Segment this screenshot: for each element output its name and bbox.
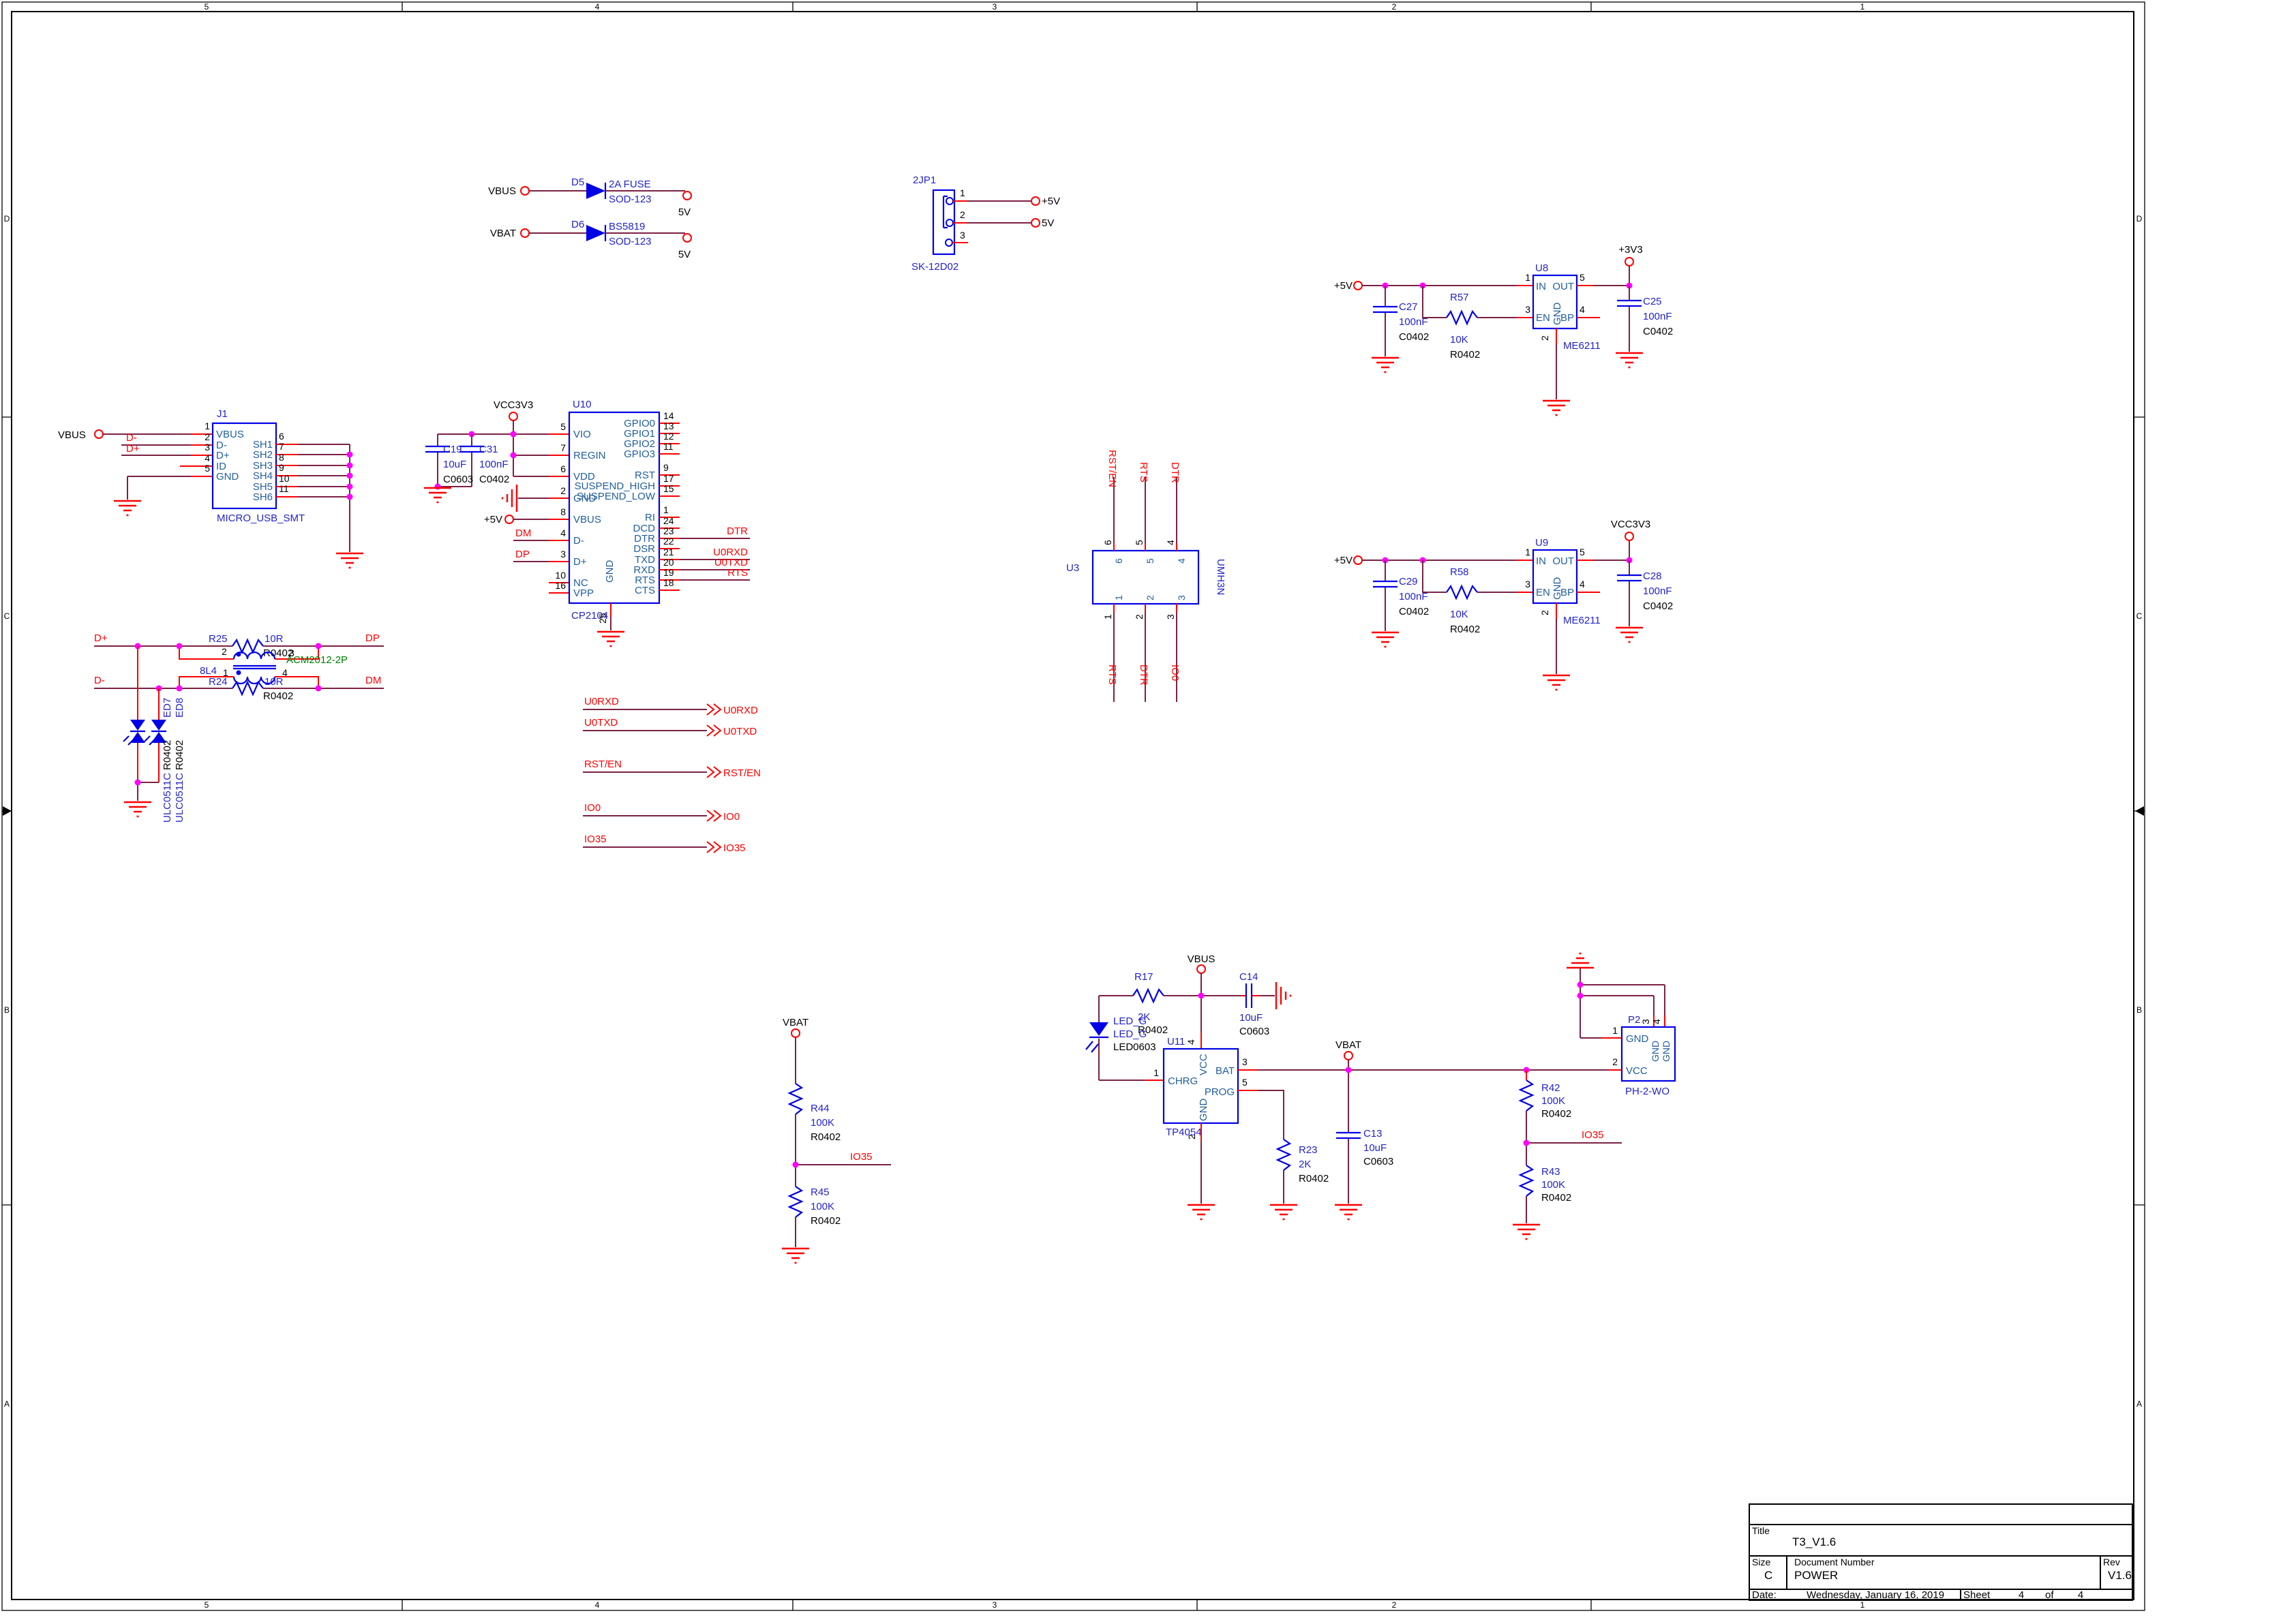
diode-icon	[586, 183, 605, 199]
refdes: C28	[1643, 570, 1662, 582]
net-label-rts: RTS	[1106, 664, 1118, 685]
border-zone-dividers	[2, 2, 2145, 1610]
net-label-vbus: VBUS	[488, 185, 516, 197]
resistor-icon	[1133, 990, 1164, 1002]
refdes: U11	[1167, 1036, 1185, 1047]
ground-icon	[124, 802, 151, 816]
pin-number: 2	[1186, 1134, 1197, 1139]
pin-name: CHRG	[1168, 1075, 1198, 1087]
pin-number: 2	[222, 646, 227, 657]
junction-dot	[177, 643, 183, 649]
pin-name: VCC	[1198, 1054, 1209, 1075]
border-outer	[2, 2, 2145, 1610]
net-label-p5v: +5V	[1334, 280, 1353, 292]
pin-name-gnd: GND	[604, 560, 616, 583]
ldo-u9: +5V C29 100nF C0402 R58 10K R0402 U9 1 I…	[1334, 519, 1673, 690]
pin-number: 4	[1185, 1039, 1196, 1045]
pin-number: 17	[663, 473, 674, 484]
border-col-bottom: 4	[595, 1600, 600, 1610]
part-value: ACM2012-2P	[286, 654, 348, 666]
pin-number: 3	[1165, 614, 1176, 619]
pin-name-gnd: GND	[1552, 303, 1563, 326]
part-value: 2K	[1299, 1159, 1311, 1170]
resistor-icon	[1520, 1165, 1532, 1196]
net-label-dm: DM	[365, 675, 381, 686]
pin-number: 3	[1525, 304, 1530, 315]
pin-number: 1	[663, 504, 669, 515]
pin-name: 4	[1176, 558, 1187, 564]
part-value: 10uF	[443, 459, 466, 470]
footprint: R0402	[263, 690, 293, 702]
refdes: P2	[1628, 1014, 1640, 1026]
offpage-arrow-icon	[707, 842, 721, 853]
pin-name: GND	[1626, 1033, 1649, 1045]
junction-dot	[793, 1162, 799, 1168]
offpage-arrow-icon	[707, 767, 721, 778]
part-value: BS5819	[609, 221, 645, 232]
border-col-top: 1	[1860, 2, 1865, 12]
part-value: 100K	[811, 1201, 834, 1212]
offpage-label-io35: IO35	[723, 842, 746, 854]
net-label-dm: DM	[515, 527, 531, 539]
pin-name: GND	[1650, 1041, 1661, 1062]
wire	[1593, 266, 1629, 286]
ground-icon	[1335, 1205, 1362, 1219]
net-label-dminus: D-	[126, 432, 137, 444]
pin-name: 2	[1145, 595, 1155, 600]
footprint: R0402	[162, 740, 173, 770]
choke-polarity-dot	[237, 671, 241, 675]
footprint: C0603	[443, 474, 473, 485]
battery-connector-p2: P2 PH-2-WO 1 GND 2 VCC 3 4 GND GND R42 1…	[1513, 953, 1675, 1239]
net-label-vbat: VBAT	[783, 1017, 809, 1028]
schottky-diode-d6: VBAT D6 BS5819 SOD-123 5V	[490, 219, 691, 260]
pin-number: 5	[1580, 547, 1585, 557]
pin-name: SUSPEND_LOW	[577, 491, 656, 502]
net-port-icon	[521, 187, 529, 195]
border-row-left: A	[4, 1399, 10, 1409]
pin-name: OUT	[1552, 555, 1574, 567]
refdes: U3	[1066, 562, 1079, 574]
schematic-canvas: 5 4 3 2 1 5 4 3 2 1 D C B A D C B A Titl…	[0, 0, 2296, 1622]
net-port-icon	[505, 515, 513, 523]
refdes: 8L4	[200, 665, 217, 677]
refdes: C19	[443, 444, 462, 455]
pin-number: 6	[279, 431, 284, 442]
ground-icon	[1543, 675, 1570, 690]
net-port-icon	[1197, 965, 1205, 973]
ground-icon	[597, 632, 624, 646]
net-label-io35: IO35	[584, 833, 607, 845]
pin-number: 3	[560, 549, 566, 560]
wire	[1423, 560, 1517, 592]
refdes: R43	[1541, 1166, 1560, 1178]
pin-name: 3	[1176, 595, 1187, 600]
pin-number: 8	[279, 452, 284, 463]
part-value: LED_G	[1113, 1028, 1147, 1040]
led-emission-arrows	[1086, 1041, 1098, 1052]
refdes: D6	[571, 219, 584, 230]
border-row-right: D	[2136, 214, 2143, 224]
net-label-dp: DP	[365, 632, 380, 644]
pin-number: 1	[1525, 272, 1530, 283]
refdes: U9	[1535, 537, 1548, 549]
junction-dot	[511, 453, 517, 459]
ground-icon	[1616, 628, 1643, 642]
border-col-top: 3	[993, 2, 997, 12]
choke-core	[233, 666, 276, 669]
net-label-dtr: DTR	[727, 525, 748, 537]
pin-name: GND	[1661, 1041, 1672, 1062]
capacitor-icon	[1373, 581, 1398, 587]
footprint: C0603	[1239, 1026, 1269, 1037]
pin-name: SH6	[253, 491, 273, 503]
pin-name: VBUS	[573, 514, 601, 525]
resistor-icon	[1520, 1080, 1532, 1111]
pin-number: 24	[663, 515, 674, 526]
capacitor-icon	[1617, 575, 1642, 581]
pin-number: 3	[1525, 579, 1530, 590]
pin-number: 1	[960, 187, 965, 198]
pin-name: 5	[1145, 558, 1155, 564]
footprint: SOD-123	[609, 236, 652, 247]
pin-name: 1	[1113, 595, 1124, 600]
border-row-left: B	[4, 1005, 10, 1015]
border-col-top: 5	[205, 2, 209, 12]
pin-number: 12	[663, 431, 674, 442]
ground-icon	[502, 485, 517, 512]
switch-contact-icon	[946, 219, 953, 226]
title-block-frame	[1749, 1504, 2132, 1600]
net-label-dplus: D+	[126, 443, 140, 455]
pin-number: 5	[1242, 1077, 1248, 1088]
pin-number: 6	[560, 463, 566, 474]
battery-divider: VBAT R44 100K R0402 IO35 R45 100K R0402	[782, 1017, 891, 1263]
ground-icon	[1270, 1205, 1297, 1219]
usb-filter: D+ DP D- DM R25 10R R0402 R24 10R R0402 …	[94, 632, 384, 823]
pin-number: 1	[1525, 547, 1530, 557]
pin-name: REGIN	[573, 450, 606, 461]
wire	[796, 1037, 891, 1247]
capacitor-icon	[1617, 301, 1642, 306]
part-value: ULC0511C	[174, 773, 185, 823]
refdes: R23	[1299, 1144, 1318, 1156]
pin-number: 4	[205, 453, 210, 463]
pin-number: 10	[279, 473, 290, 484]
pin-number: 4	[560, 527, 566, 538]
refdes: R44	[811, 1103, 830, 1114]
footprint: LED0603	[1113, 1041, 1156, 1053]
pin-name: GND	[1198, 1099, 1209, 1122]
refdes: J1	[217, 408, 228, 420]
net-port-icon	[509, 412, 517, 420]
footprint: R0402	[811, 1215, 841, 1227]
part-value: 100nF	[1643, 585, 1672, 597]
schematic-page: 5 4 3 2 1 5 4 3 2 1 D C B A D C B A Titl…	[0, 0, 2296, 1622]
net-label-rts: RTS	[727, 567, 748, 579]
pin-number: 7	[560, 442, 566, 453]
footprint: R0402	[1299, 1173, 1329, 1184]
pin-name: D-	[573, 535, 584, 547]
part-value: ME6211	[1563, 615, 1601, 626]
doc-number-value: POWER	[1794, 1569, 1838, 1582]
offpage-arrow-icon	[707, 704, 721, 715]
net-label-dp: DP	[515, 549, 530, 560]
pin-name: SH2	[253, 449, 273, 461]
refdes: R42	[1541, 1082, 1560, 1094]
net-label-vbus: VBUS	[58, 429, 86, 441]
pin-number: 14	[663, 410, 674, 421]
junction-dot	[1346, 1067, 1352, 1073]
border-arrow-right-icon	[2135, 806, 2144, 816]
net-port-icon	[1354, 556, 1362, 564]
pin-number: 20	[663, 557, 674, 568]
part-value: 10R	[265, 633, 284, 645]
sheet-label: Sheet	[1963, 1589, 1991, 1601]
part-value: 2A FUSE	[609, 179, 651, 190]
usb-connector-j1: VBUS D- D+ J1 MICRO_USB_SMT 1 2 3 4 5 VB…	[58, 408, 363, 568]
refdes: C25	[1643, 296, 1662, 307]
junction-dot	[347, 463, 353, 469]
pin-name: BAT	[1215, 1065, 1235, 1077]
net-label-5v: 5V	[1042, 217, 1054, 229]
border-inner	[12, 12, 2134, 1600]
junction-dot	[1198, 993, 1205, 999]
resistor-icon	[232, 682, 263, 694]
net-label-5v: 5V	[678, 206, 691, 218]
wire	[298, 444, 350, 552]
net-port-icon	[1031, 197, 1040, 205]
offpage-signals: U0RXD U0RXD U0TXD U0TXD RST/EN RST/EN IO…	[583, 696, 761, 854]
border-col-bottom: 3	[993, 1600, 997, 1610]
junction-dot	[135, 780, 141, 786]
pin-number: 13	[663, 420, 674, 431]
refdes: ED7	[162, 698, 173, 718]
footprint: C0402	[1643, 326, 1673, 337]
pin-number: 16	[555, 580, 566, 591]
net-label-io0: IO0	[584, 802, 601, 814]
net-label-io35: IO35	[1582, 1129, 1604, 1141]
pin-name: EN	[1536, 312, 1550, 324]
junction-dot	[177, 686, 183, 692]
pin-number: 5	[1134, 540, 1145, 545]
offpage-label-u0txd: U0TXD	[723, 726, 757, 737]
net-label-dtr: DTR	[1169, 462, 1181, 483]
refdes: ED8	[174, 698, 185, 718]
net-label-vbus: VBUS	[1188, 953, 1215, 965]
refdes: 2JP1	[913, 174, 936, 186]
refdes: R25	[209, 633, 228, 645]
net-label-rst-en: RST/EN	[584, 759, 622, 770]
pin-number: 8	[560, 506, 566, 517]
pin-name: IN	[1536, 555, 1546, 567]
part-value: 10uF	[1363, 1142, 1387, 1154]
net-port-icon	[683, 192, 691, 200]
part-value: ULC0511C	[162, 773, 173, 823]
pin-number: 4	[1165, 540, 1176, 545]
net-port-icon	[683, 234, 691, 242]
pin-name: D+	[216, 450, 230, 461]
net-label-rst-en: RST/EN	[1106, 450, 1118, 487]
pin-number: 11	[279, 483, 289, 494]
net-label-io0: IO0	[1169, 664, 1181, 681]
refdes: D5	[571, 177, 584, 188]
pin-number: 5	[1580, 272, 1585, 283]
net-label-rts: RTS	[1138, 462, 1149, 483]
wire	[138, 782, 159, 801]
pin-name: DSR	[633, 543, 655, 555]
ground-icon	[1372, 358, 1399, 372]
usb-uart-u10: VCC3V3 C19 10uF C0603 C31 100nF C0402 +5…	[424, 399, 750, 646]
net-port-icon	[1625, 258, 1633, 266]
footprint: SK-12D02	[911, 261, 958, 273]
wire	[967, 201, 1031, 223]
ground-icon	[782, 1249, 809, 1263]
refdes: C31	[479, 444, 498, 455]
pin-number: 23	[663, 525, 674, 536]
pin-number: 3	[205, 442, 210, 453]
title-block: Title T3_V1.6 Size C Document Number POW…	[1749, 1504, 2132, 1601]
pin-number: 11	[663, 441, 674, 452]
junction-dot	[347, 494, 353, 500]
ground-icon	[1543, 401, 1570, 415]
footprint: R0402	[174, 740, 185, 770]
pin-number: 18	[663, 577, 674, 588]
footprint: R0402	[1541, 1192, 1571, 1204]
pin-number: 3	[1242, 1056, 1248, 1067]
wire	[138, 646, 159, 782]
junction-dot	[316, 643, 322, 649]
junction-dot	[316, 686, 322, 692]
date-value: Wednesday, January 16, 2019	[1807, 1589, 1944, 1601]
net-label-u0txd: U0TXD	[584, 717, 618, 729]
date-label: Date:	[1752, 1589, 1777, 1601]
pin-number: 1	[1102, 614, 1113, 619]
size-label: Size	[1752, 1557, 1770, 1567]
size-value: C	[1764, 1569, 1772, 1582]
rev-value: V1.6	[2108, 1569, 2132, 1582]
resistor-icon	[232, 640, 263, 652]
ldo-u8: +5V C27 100nF C0402 R57 10K R0402 U8 1 I…	[1334, 244, 1673, 415]
net-label-u0rxd: U0RXD	[584, 696, 619, 707]
part-value: 100nF	[479, 459, 509, 470]
junction-dot	[347, 452, 353, 458]
refdes: C29	[1399, 576, 1418, 587]
part-value: 100K	[1541, 1095, 1565, 1107]
refdes: R58	[1450, 566, 1469, 578]
border-row-right: A	[2136, 1399, 2142, 1409]
refdes: U8	[1535, 262, 1548, 274]
pin-name: VCC	[1626, 1065, 1648, 1077]
pin-number: 4	[1651, 1019, 1662, 1024]
part-value: 10K	[1450, 334, 1468, 346]
resistor-icon	[1447, 311, 1477, 324]
pin-name-gnd: GND	[1552, 577, 1563, 600]
border-col-top: 2	[1392, 2, 1397, 12]
pin-number: 2	[1539, 335, 1550, 341]
pin-number: 6	[1102, 540, 1113, 545]
wire	[103, 434, 191, 500]
footprint: C0402	[1399, 606, 1429, 617]
ground-icon	[1616, 353, 1643, 367]
rev-label: Rev	[2103, 1557, 2120, 1567]
footprint: SOD-123	[609, 194, 652, 205]
sheet-number: 4	[2019, 1589, 2024, 1601]
net-label-vbat: VBAT	[490, 228, 516, 239]
pin-number: 15	[663, 483, 674, 494]
choke-polarity-dot	[237, 652, 241, 657]
pin-number: 10	[555, 570, 566, 581]
pin-name: CTS	[635, 585, 655, 596]
part-value: ME6211	[1563, 340, 1601, 352]
pin-number: 1	[1612, 1025, 1618, 1036]
pin-number: 1	[223, 667, 228, 678]
pin-number: 5	[560, 421, 566, 432]
pin-name: RST	[635, 470, 655, 481]
net-label-p5v: +5V	[1334, 555, 1353, 566]
refdes: R45	[811, 1187, 830, 1198]
border-col-top: 4	[595, 2, 600, 12]
capacitor-icon	[1246, 983, 1252, 1008]
border-arrow-left-icon	[3, 806, 12, 816]
net-port-icon	[1625, 532, 1633, 540]
pin-name: VIO	[573, 429, 591, 440]
part-value: PH-2-WO	[1625, 1086, 1670, 1097]
pin-number: 21	[663, 547, 674, 557]
pin-stub	[1114, 543, 1177, 612]
ground-icon	[1567, 953, 1594, 968]
border-row-left: D	[4, 214, 10, 224]
resistor-icon	[1278, 1139, 1290, 1170]
pin-name: EN	[1536, 587, 1550, 598]
junction-dot	[511, 431, 517, 438]
part-value: UMH3N	[1215, 559, 1226, 595]
footprint: C0603	[1363, 1156, 1393, 1167]
net-label-p5v: +5V	[484, 514, 502, 525]
border-col-bottom: 5	[205, 1600, 209, 1610]
net-label-vcc3v3: VCC3V3	[494, 399, 533, 411]
offpage-label-io0: IO0	[723, 811, 740, 823]
pin-number: 1	[1153, 1067, 1159, 1078]
pin-number: 4	[1580, 304, 1585, 315]
border-row-left: C	[4, 611, 10, 621]
net-port-icon	[521, 229, 529, 237]
switch-contact-icon	[946, 198, 953, 204]
sheet-title: T3_V1.6	[1792, 1535, 1836, 1548]
border-row-right: B	[2136, 1005, 2142, 1015]
sheet-total: 4	[2078, 1589, 2083, 1601]
transistor-array-u3: U3 UMH3N RST/EN RTS DTR RTS DTR IO0 6 5 …	[1066, 450, 1226, 702]
resistor-icon	[789, 1084, 802, 1114]
capacitor-icon	[1336, 1133, 1361, 1138]
junction-dot	[1577, 993, 1584, 999]
pin-name: OUT	[1552, 281, 1574, 292]
refdes: C14	[1239, 971, 1258, 983]
wire	[1423, 286, 1517, 318]
fuse-diode-d5: VBUS D5 2A FUSE SOD-123 5V	[488, 177, 691, 218]
net-port-icon	[791, 1029, 800, 1037]
refdes: C13	[1363, 1128, 1383, 1139]
tvs-diode-icon	[123, 720, 145, 745]
pin-name: PROG	[1205, 1086, 1235, 1098]
pin-number: 7	[279, 441, 284, 452]
sheet-border: 5 4 3 2 1 5 4 3 2 1 D C B A D C B A	[2, 2, 2145, 1610]
refdes: U10	[573, 399, 592, 410]
pin-number: 2	[205, 431, 210, 442]
net-label-dplus: D+	[94, 632, 108, 644]
part-value: 100K	[811, 1117, 834, 1129]
net-label-vbat: VBAT	[1335, 1039, 1361, 1051]
